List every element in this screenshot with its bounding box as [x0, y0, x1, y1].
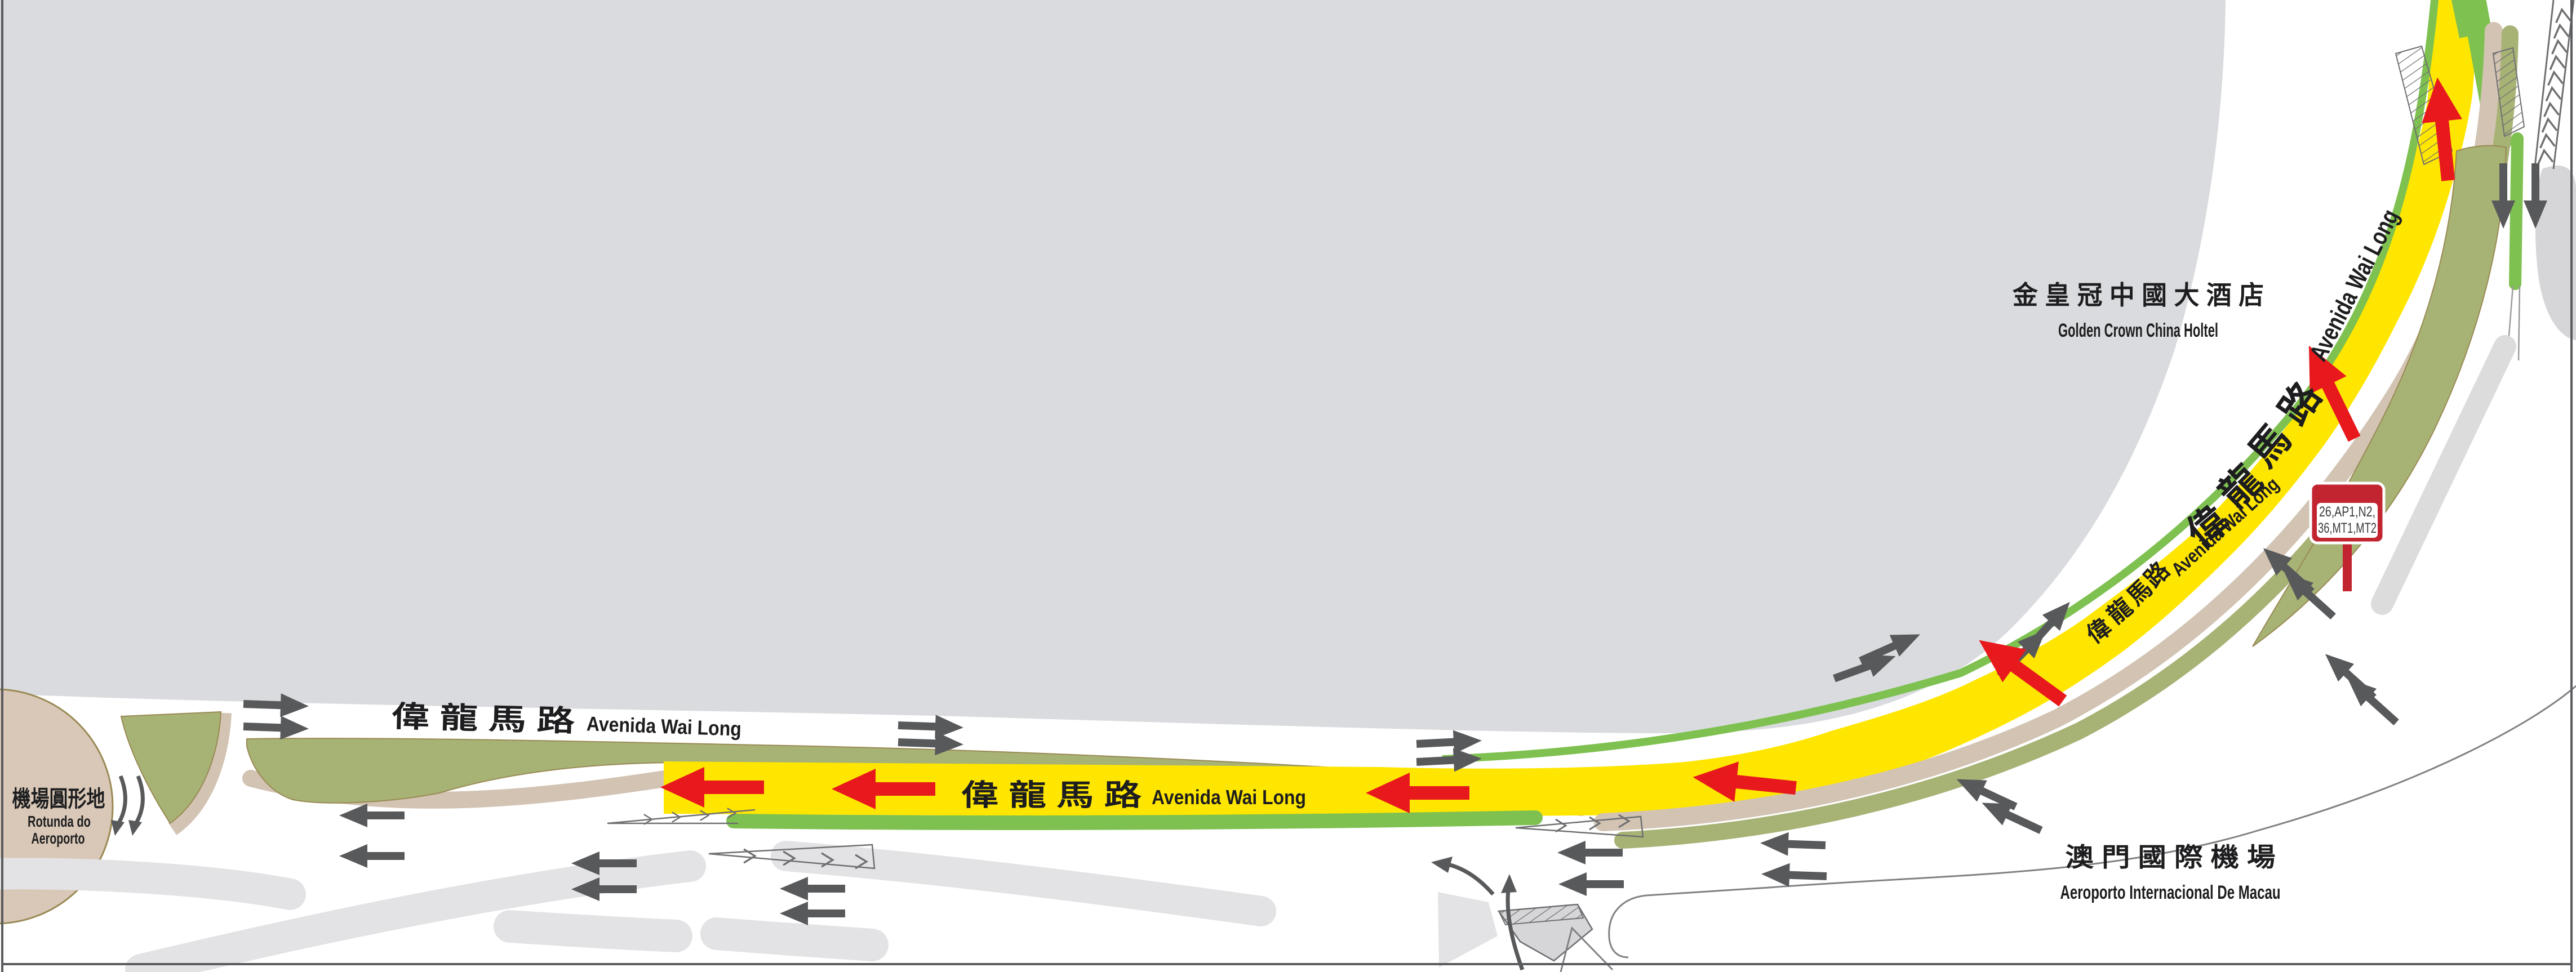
road-closed-label-en: Avenida Wai Long	[1152, 786, 1306, 809]
bus-routes-line2: 36,MT1,MT2	[2318, 520, 2377, 536]
layby-band	[510, 926, 676, 936]
median-right-road	[2515, 139, 2517, 284]
border-right	[2570, 0, 2573, 972]
border-bottom	[1, 963, 2573, 965]
road-closed-label-zh: 偉 龍 馬 路	[961, 779, 1142, 812]
border-left	[1, 0, 3, 972]
airport-label-zh: 澳 門 國 際 機 場	[2066, 842, 2276, 872]
roundabout-label-en2: Aeroporto	[32, 830, 85, 847]
verge-south-of-closed-lane	[734, 818, 1535, 823]
airport-label-en: Aeroporto Internacional De Macau	[2060, 882, 2281, 903]
traffic-map-canvas: 機場圓形地 Rotunda do Aeroporto	[0, 0, 2576, 972]
hotel-label-en: Golden Crown China Holtel	[2058, 320, 2218, 341]
road-upper-label-zh: 偉 龍 馬 路	[391, 701, 576, 738]
bus-routes-line1: 26,AP1,N2,	[2319, 504, 2375, 520]
roundabout-label-zh: 機場圓形地	[12, 787, 105, 812]
sign-post	[2343, 542, 2352, 591]
layby-band	[717, 934, 872, 945]
hotel-label-zh: 金 皇 冠 中 國 大 酒 店	[2012, 280, 2264, 310]
roundabout-label-en1: Rotunda do	[28, 813, 91, 830]
undeveloped-area	[0, 0, 2226, 733]
